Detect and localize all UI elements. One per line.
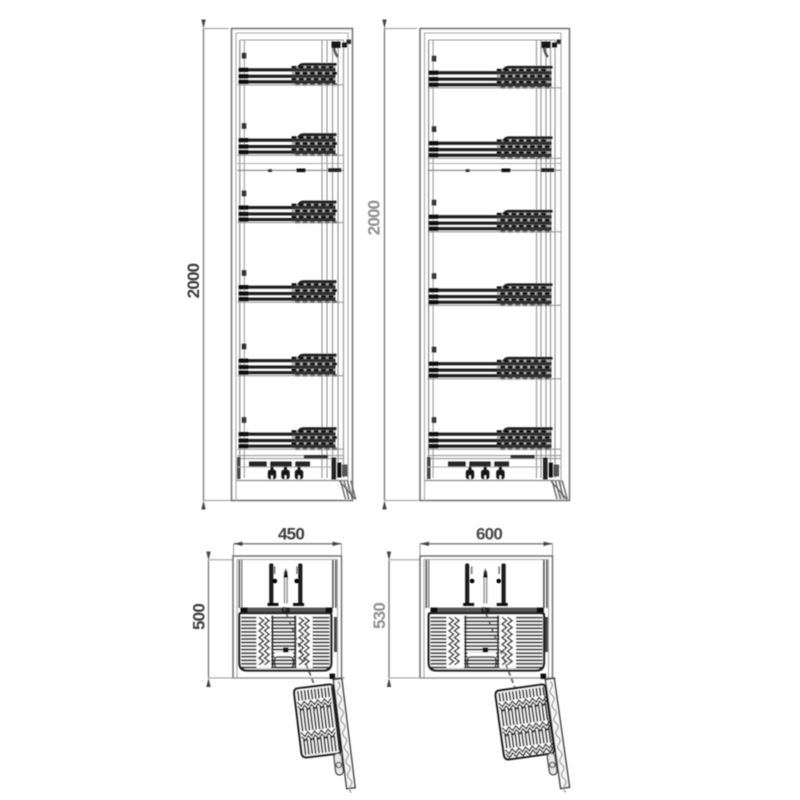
svg-text:2000: 2000 — [184, 263, 203, 298]
svg-text:600: 600 — [476, 525, 502, 544]
svg-text:530: 530 — [370, 603, 389, 629]
svg-text:450: 450 — [278, 525, 304, 544]
svg-text:500: 500 — [190, 604, 209, 630]
svg-text:2000: 2000 — [365, 200, 384, 235]
